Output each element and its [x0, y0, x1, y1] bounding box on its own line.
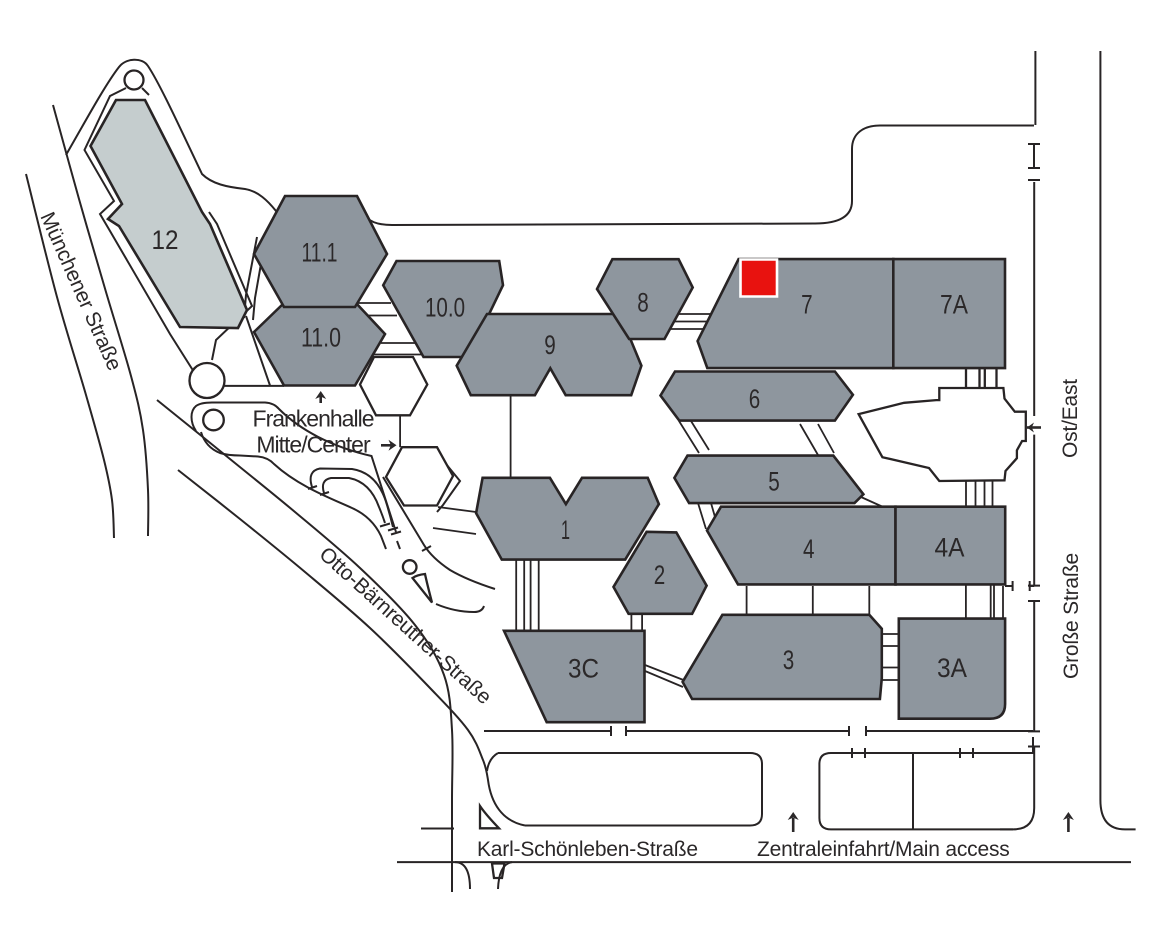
svg-text:Frankenhalle: Frankenhalle — [253, 406, 374, 432]
svg-text:4: 4 — [803, 534, 815, 564]
svg-text:4A: 4A — [935, 533, 965, 563]
svg-text:Mitte/Center: Mitte/Center — [256, 432, 371, 458]
svg-text:Große Straße: Große Straße — [1060, 553, 1083, 679]
svg-text:3: 3 — [783, 645, 795, 675]
svg-text:7A: 7A — [940, 289, 968, 319]
svg-text:8: 8 — [637, 288, 649, 318]
svg-text:Karl-Schönleben-Straße: Karl-Schönleben-Straße — [477, 838, 698, 861]
svg-text:3C: 3C — [568, 654, 599, 684]
svg-text:6: 6 — [749, 384, 761, 414]
svg-text:5: 5 — [768, 466, 780, 496]
svg-text:3A: 3A — [937, 653, 967, 683]
svg-text:2: 2 — [654, 560, 666, 590]
svg-text:7: 7 — [801, 290, 813, 320]
svg-text:9: 9 — [544, 330, 556, 360]
svg-text:Ost/East: Ost/East — [1059, 379, 1082, 458]
svg-text:1: 1 — [561, 515, 570, 545]
svg-text:11.0: 11.0 — [301, 323, 341, 353]
svg-text:12: 12 — [152, 225, 179, 255]
svg-text:10.0: 10.0 — [425, 292, 465, 322]
svg-text:11.1: 11.1 — [302, 237, 338, 267]
svg-text:Zentraleinfahrt/Main access: Zentraleinfahrt/Main access — [757, 838, 1010, 861]
